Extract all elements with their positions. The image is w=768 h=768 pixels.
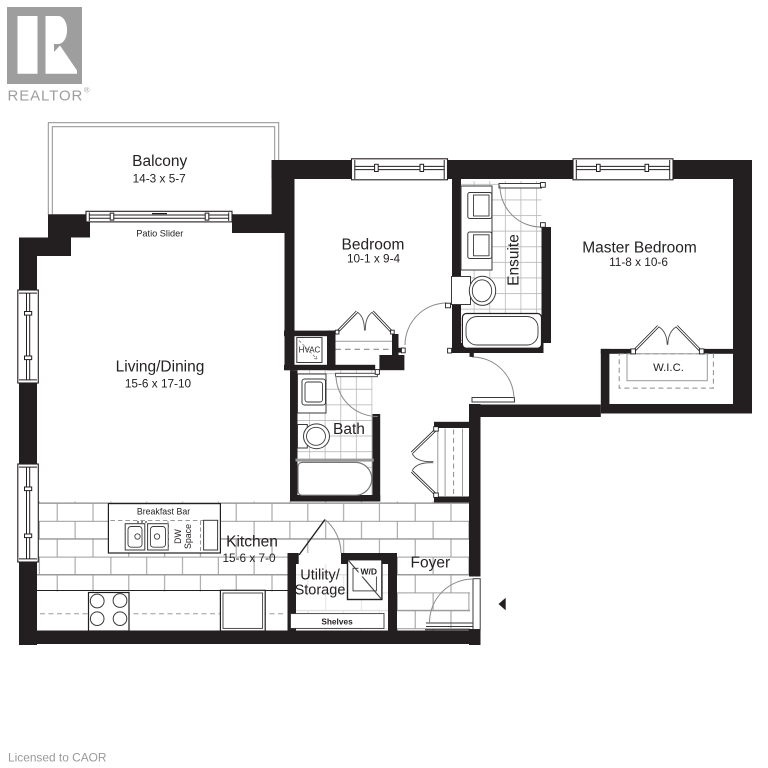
svg-text:Master Bedroom: Master Bedroom [582, 240, 697, 257]
svg-text:Licensed to CAOR: Licensed to CAOR [8, 751, 107, 765]
svg-text:Utility/: Utility/ [300, 568, 340, 584]
svg-text:Ensuite: Ensuite [506, 234, 523, 286]
svg-text:15-6 x 7-0: 15-6 x 7-0 [222, 551, 276, 565]
svg-text:W.I.C.: W.I.C. [653, 362, 684, 374]
svg-text:Breakfast Bar: Breakfast Bar [137, 507, 190, 517]
svg-text:Living/Dining: Living/Dining [116, 359, 205, 376]
svg-text:Patio Slider: Patio Slider [136, 229, 183, 239]
svg-text:W/D: W/D [361, 567, 378, 577]
svg-text:11-8 x 10-6: 11-8 x 10-6 [609, 255, 668, 269]
svg-text:Storage: Storage [295, 583, 346, 599]
svg-text:Foyer: Foyer [410, 555, 450, 572]
svg-text:15-6 x 17-10: 15-6 x 17-10 [125, 377, 192, 391]
svg-text:Bath: Bath [333, 421, 365, 438]
svg-text:®: ® [84, 86, 90, 95]
svg-text:14-3 x 5-7: 14-3 x 5-7 [133, 172, 186, 186]
svg-text:REALTOR: REALTOR [8, 88, 84, 105]
svg-text:Space: Space [183, 524, 193, 549]
svg-text:DW: DW [173, 528, 183, 543]
svg-text:Shelves: Shelves [321, 617, 353, 627]
svg-text:Balcony: Balcony [132, 153, 187, 170]
svg-text:10-1 x 9-4: 10-1 x 9-4 [347, 252, 401, 266]
svg-text:Kitchen: Kitchen [226, 534, 278, 551]
svg-text:HVAC: HVAC [299, 346, 321, 355]
